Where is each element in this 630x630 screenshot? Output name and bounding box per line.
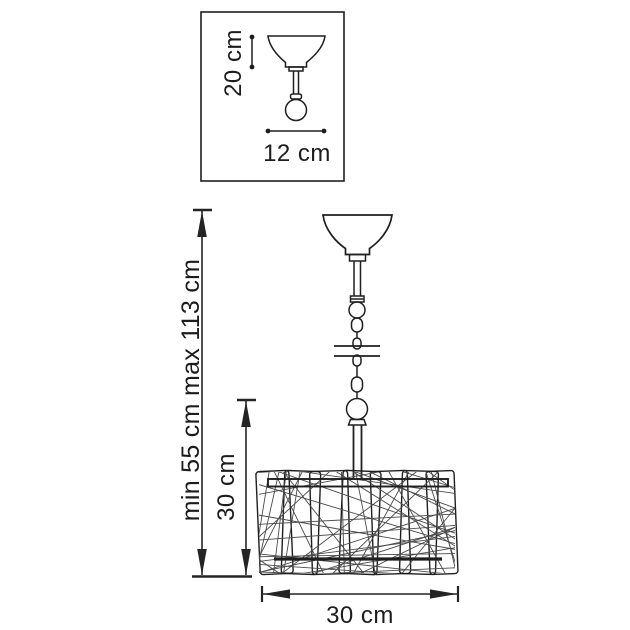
upper-suspension-rod (351, 261, 365, 302)
overall-height-label: min 55 cm max 113 cm (177, 259, 205, 522)
shade-string-line (332, 469, 458, 548)
shade-width-dimension (262, 586, 458, 602)
canopy-neck-collar (289, 67, 303, 71)
ceiling-mount-inset: 20 cm 12 cm (201, 12, 344, 181)
chain-ball-large (347, 399, 368, 420)
inset-width-label: 12 cm (263, 140, 331, 167)
canopy-bell-icon (268, 36, 325, 67)
chain-capsule-1 (352, 318, 363, 332)
pendant-lamp-drawing (256, 215, 458, 576)
canopy-ball-finial (286, 100, 307, 121)
inset-width-dimension (266, 129, 327, 134)
inset-canopy-drawing (268, 36, 325, 121)
suspension-chain-elements (334, 302, 380, 425)
pendant-canopy-bell (323, 215, 392, 255)
diagram-canvas: 20 cm 12 cm (0, 0, 630, 630)
canopy-rod-ring (291, 94, 302, 99)
chain-capsule-small-1 (353, 338, 361, 349)
product-dimension-diagram: 20 cm 12 cm (0, 0, 630, 630)
shade-width-label: 30 cm (326, 602, 394, 629)
chain-capsule-2 (352, 377, 363, 392)
shade-height-label: 30 cm (213, 453, 240, 521)
chain-ball-small (349, 302, 365, 318)
shade-string-line (256, 525, 458, 540)
lampshade (256, 469, 458, 576)
inset-height-dimension (250, 35, 255, 70)
inset-height-label: 20 cm (220, 29, 247, 97)
ball-collar (349, 420, 367, 426)
pendant-canopy-collar (350, 255, 366, 262)
